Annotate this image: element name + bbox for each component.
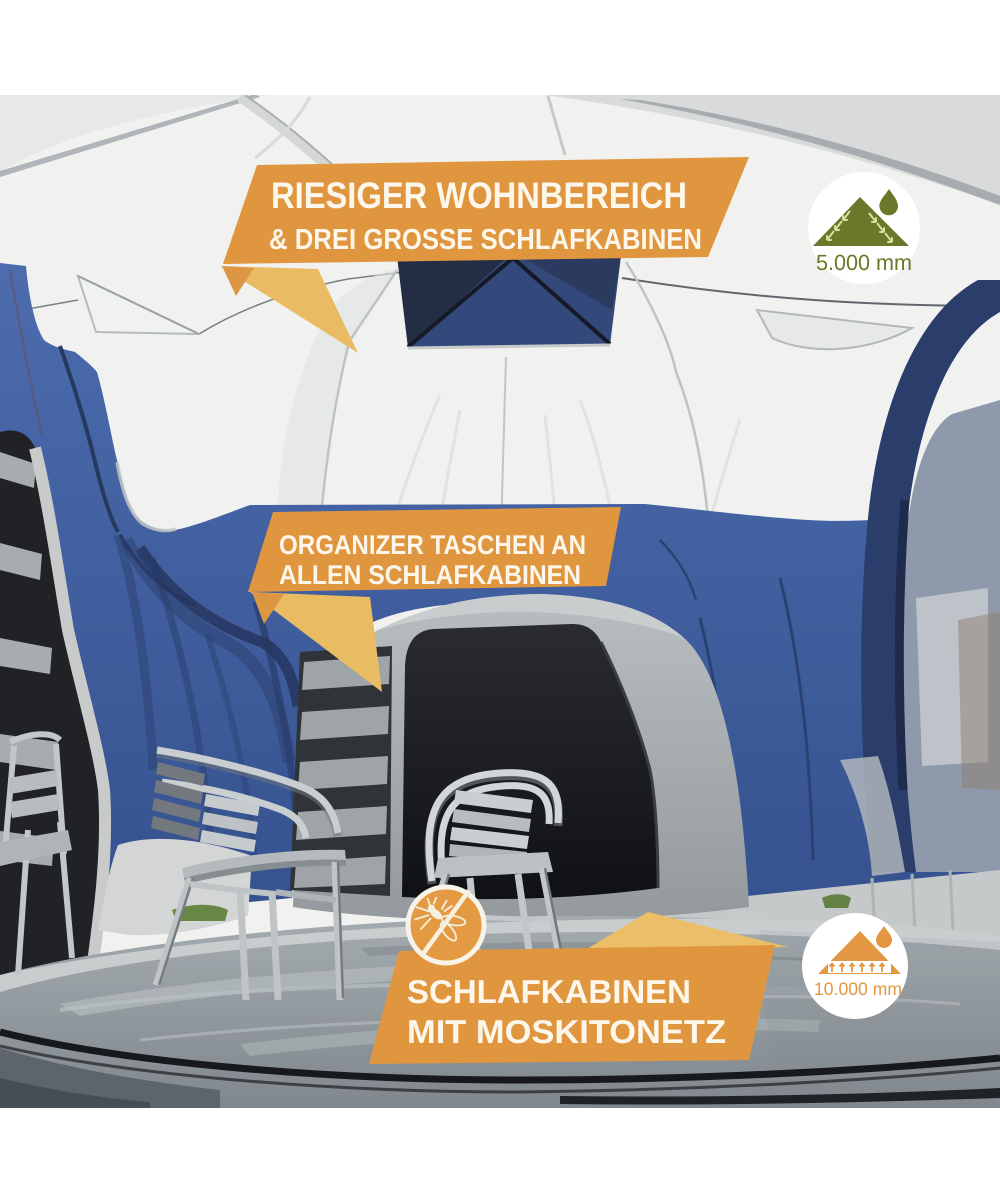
svg-text:ORGANIZER TASCHEN AN: ORGANIZER TASCHEN AN <box>279 530 586 560</box>
svg-text:& DREI GROSSE SCHLAFKABINEN: & DREI GROSSE SCHLAFKABINEN <box>269 224 702 256</box>
svg-text:MIT MOSKITONETZ: MIT MOSKITONETZ <box>407 1013 726 1050</box>
svg-text:10.000 mm: 10.000 mm <box>814 979 902 999</box>
svg-text:SCHLAFKABINEN: SCHLAFKABINEN <box>407 973 691 1010</box>
svg-text:5.000 mm: 5.000 mm <box>816 250 912 275</box>
svg-text:RIESIGER WOHNBEREICH: RIESIGER WOHNBEREICH <box>271 175 687 216</box>
svg-text:ALLEN SCHLAFKABINEN: ALLEN SCHLAFKABINEN <box>279 560 581 590</box>
